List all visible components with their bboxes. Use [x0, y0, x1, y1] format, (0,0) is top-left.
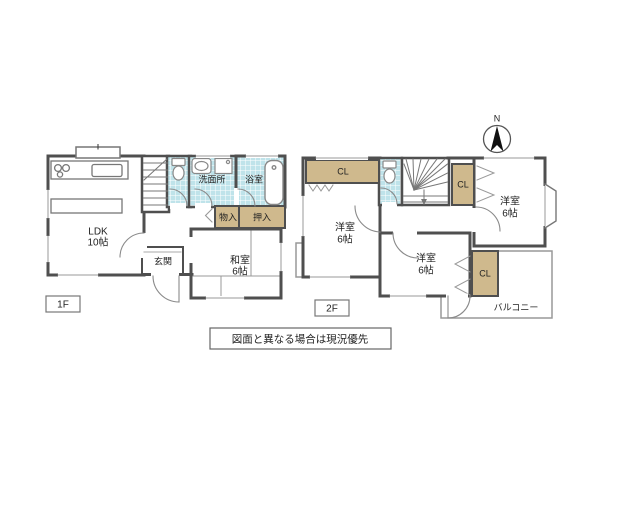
room-size-ldk: 10帖	[87, 236, 108, 249]
washbasin-icon	[192, 159, 211, 174]
room-label-ldk: LDK	[88, 227, 108, 238]
room-label-yoshitsu-right: 洋室	[500, 195, 520, 208]
closet-label-oshiire: 押入	[253, 211, 271, 222]
balcony-label: バルコニー	[494, 302, 539, 312]
closet-label-cl-mid: CL	[457, 179, 469, 189]
floorplan-canvas: N	[0, 0, 640, 529]
floor-2f: CL CL CL 洋室 6帖 洋室 6帖 洋室 6帖 バルコニー 2F	[296, 156, 556, 318]
bathtub-icon	[265, 161, 283, 205]
room-size-yoshitsu-right: 6帖	[502, 207, 518, 220]
floor-tag-1f: 1F	[57, 300, 69, 311]
room-label-genkan: 玄関	[154, 255, 172, 266]
room-size-yoshitsu-center: 6帖	[418, 264, 434, 277]
room-label-yoshitsu-center: 洋室	[416, 252, 436, 265]
compass-north-label: N	[494, 113, 501, 123]
toilet-icon-2f	[383, 161, 396, 183]
room-label-yoshitsu-left: 洋室	[335, 221, 355, 234]
floor-1f: LDK 10帖 洗面所 浴室 物入 押入 玄関 和室 6帖 1F	[46, 145, 285, 313]
room-label-bath: 浴室	[245, 173, 263, 184]
ldk-counter-icon	[51, 199, 122, 213]
compass: N	[484, 113, 511, 152]
washing-machine-icon	[215, 159, 232, 174]
closet-label-cl-top: CL	[337, 166, 349, 176]
closet-label-cl-bottom: CL	[479, 268, 491, 278]
room-label-washitsu: 和室	[230, 254, 250, 267]
disclaimer-text: 図面と異なる場合は現況優先	[232, 332, 369, 345]
room-size-washitsu: 6帖	[232, 265, 248, 278]
room-size-yoshitsu-left: 6帖	[337, 233, 353, 246]
toilet-icon-1f	[172, 159, 185, 181]
disclaimer-note: 図面と異なる場合は現況優先	[210, 328, 391, 349]
bay-window-2f	[543, 184, 557, 228]
floor-tag-2f: 2F	[326, 304, 338, 315]
floorplan-svg: N	[0, 0, 640, 529]
kitchen-counter-icon	[51, 161, 128, 179]
closet-label-monoire: 物入	[219, 211, 237, 222]
room-label-washroom: 洗面所	[198, 173, 225, 184]
